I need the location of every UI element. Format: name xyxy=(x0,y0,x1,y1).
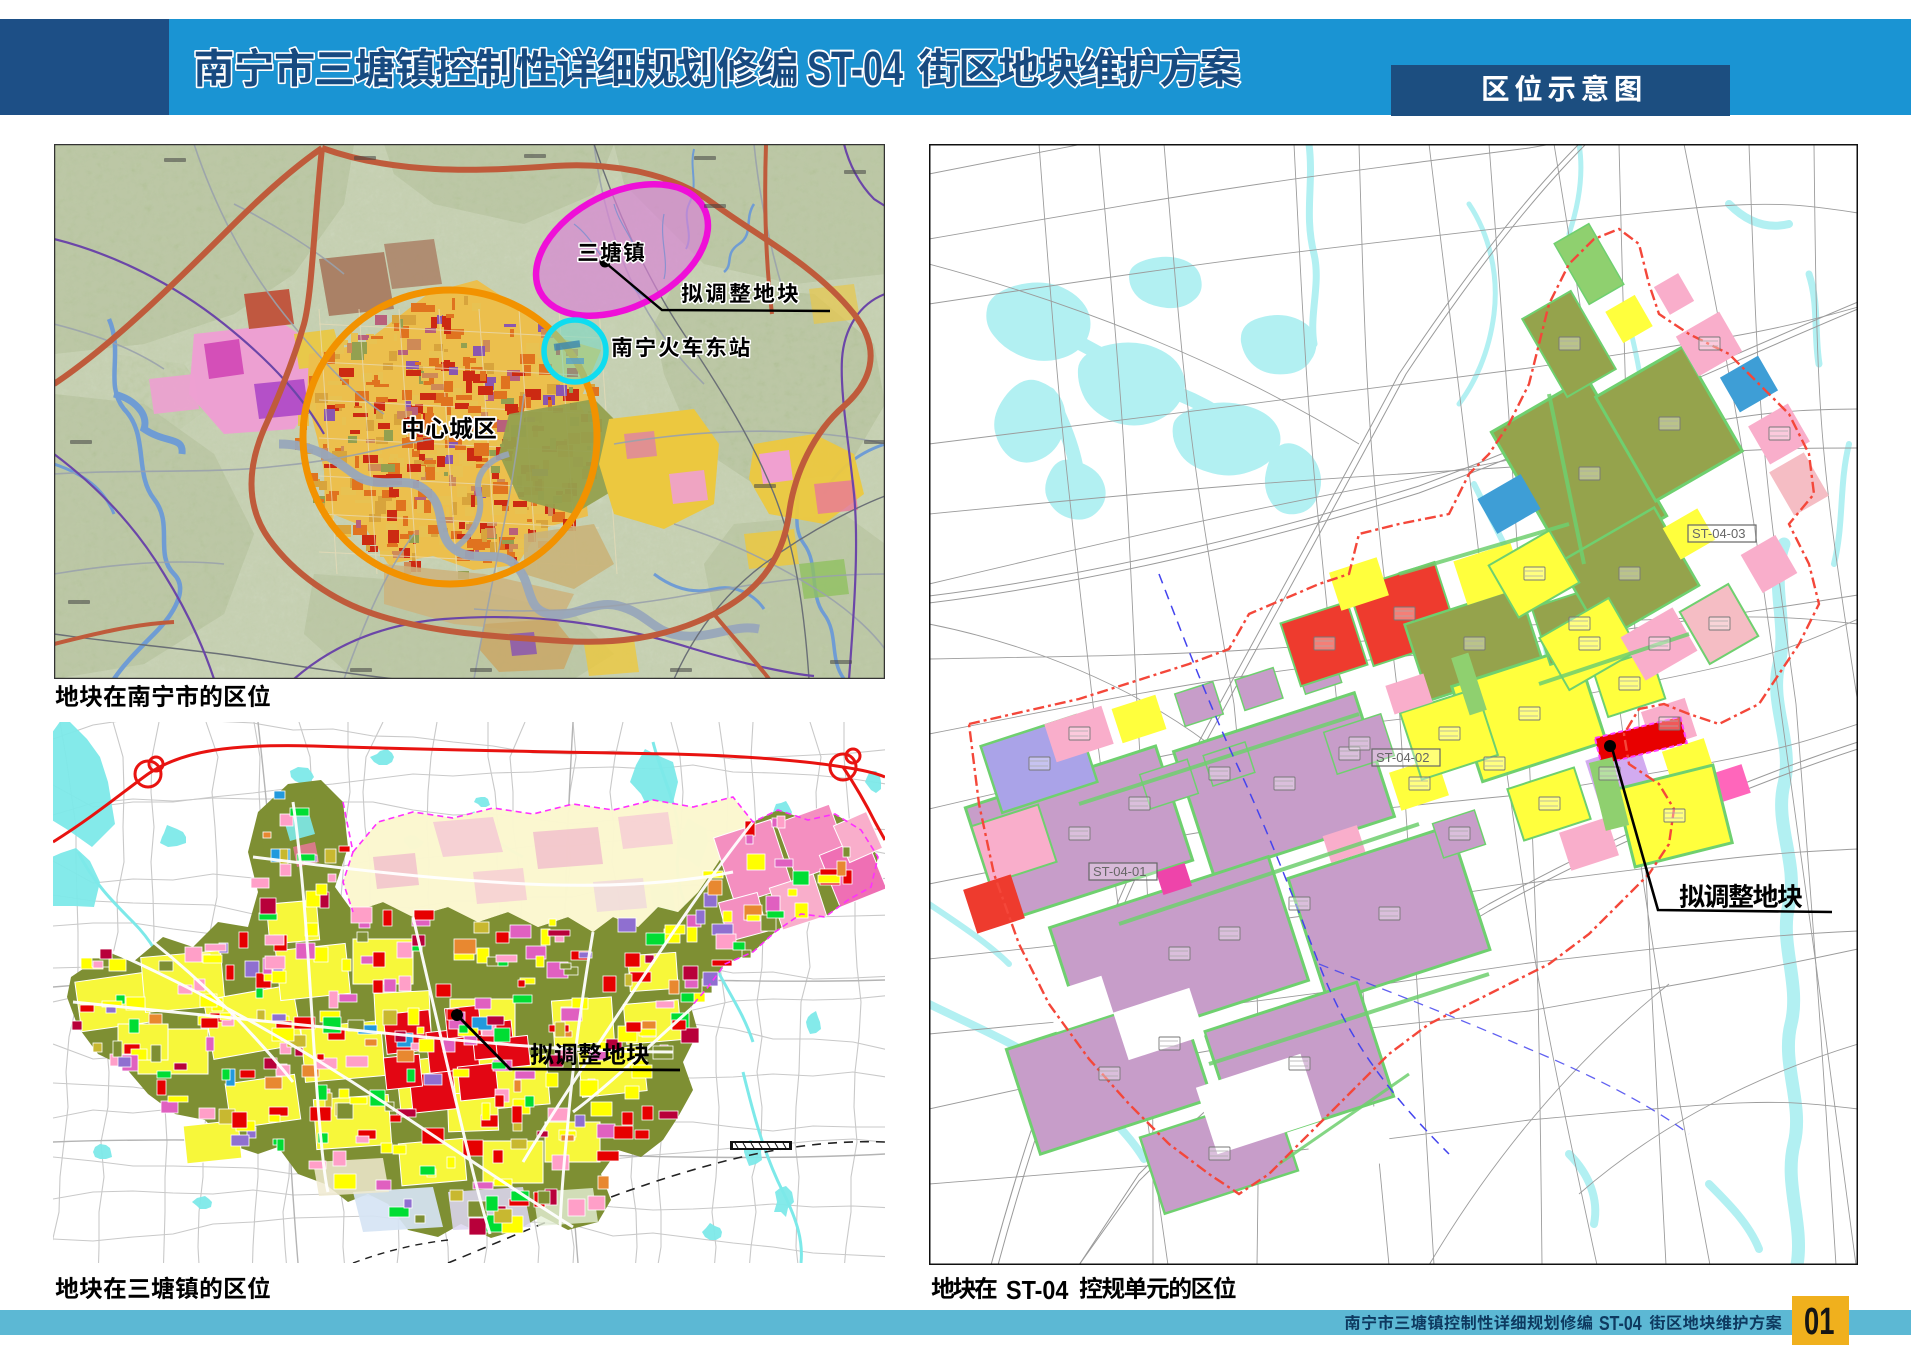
svg-text:ST-04-01: ST-04-01 xyxy=(1093,864,1146,879)
svg-text:ST-04: ST-04 xyxy=(1599,1312,1642,1334)
svg-text:ST-04: ST-04 xyxy=(807,42,903,95)
svg-text:01: 01 xyxy=(1804,1301,1834,1343)
svg-text:ST-04-02: ST-04-02 xyxy=(1376,750,1429,765)
svg-text:ST-04-03: ST-04-03 xyxy=(1692,526,1745,541)
